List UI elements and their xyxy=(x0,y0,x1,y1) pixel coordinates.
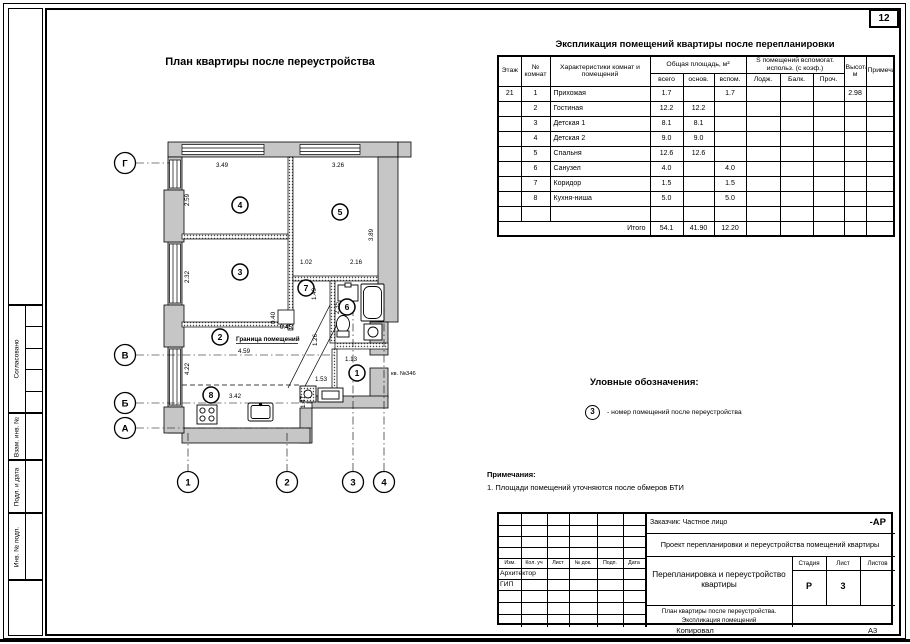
role-gip: ГИП xyxy=(500,581,540,588)
margin-agreed-boxes xyxy=(25,305,43,413)
total-row: Итого 54.1 41.90 12.20 xyxy=(498,221,894,236)
sheet-title-line2: Экспликация помещений xyxy=(649,617,789,624)
svg-text:2: 2 xyxy=(284,478,289,489)
format-label: А3 xyxy=(868,626,877,635)
svg-text:3: 3 xyxy=(238,267,243,277)
explication-total: Итого 54.1 41.90 12.20 xyxy=(498,221,894,236)
windows xyxy=(170,145,361,406)
dimension: 2.16 xyxy=(350,259,363,266)
title-block: Изм. Кол. уч Лист № док. Подп. Дата Архи… xyxy=(497,512,893,625)
dimension: 1.26 xyxy=(312,333,319,346)
explication-title: Экспликация помещений квартиры после пер… xyxy=(497,39,893,50)
dimension: 1.53 xyxy=(315,376,328,383)
dimension: 2.35 xyxy=(334,301,341,314)
legend-title: Уловные обозначения: xyxy=(590,377,760,388)
col-koluch: Кол. уч xyxy=(521,560,547,566)
svg-text:3: 3 xyxy=(350,478,355,489)
project-name: Проект перепланировки и переустройства п… xyxy=(645,540,895,549)
copied-label: Копировал xyxy=(560,626,830,635)
margin-inv-cell: Инв. № подп. xyxy=(8,513,26,580)
col-podp: Подп. xyxy=(597,560,623,566)
table-row: 7Коридор1.51.5 xyxy=(498,176,894,191)
table-row: 6Санузел4.04.0 xyxy=(498,161,894,176)
room-circle-1: 1 xyxy=(349,365,365,381)
dimension: 4.59 xyxy=(238,348,251,355)
room-circle-2: 2 xyxy=(212,329,228,345)
stage-value: Р xyxy=(792,581,826,591)
svg-text:1: 1 xyxy=(355,368,360,378)
svg-text:6: 6 xyxy=(345,302,350,312)
axis-circle-4: 4 xyxy=(374,472,395,493)
notes-line: 1. Площади помещений уточняются после об… xyxy=(487,483,684,492)
axis-circle-g: Г xyxy=(115,153,136,174)
svg-text:8: 8 xyxy=(209,390,214,400)
dimension: 3.89 xyxy=(368,228,375,241)
margin-empty-top xyxy=(8,8,43,305)
svg-text:4: 4 xyxy=(238,200,243,210)
dimension: 1.02 xyxy=(300,259,313,266)
col-ndok: № док. xyxy=(569,560,597,566)
kitchen-fixtures xyxy=(197,403,273,424)
role-architect: Архитектор xyxy=(500,570,564,577)
document-title: Перепланировка и переустройство квартиры xyxy=(649,570,789,591)
drawing-sheet: 12 Согласовано Взам. инв. № Подл. и дата… xyxy=(0,0,910,644)
margin-agreed-label-cell: Согласовано xyxy=(8,305,26,413)
margin-sign-date-cell: Подл. и дата xyxy=(8,460,26,513)
svg-text:7: 7 xyxy=(304,283,309,293)
sign-date-label: Подл. и дата xyxy=(14,467,21,506)
stove-icon xyxy=(197,405,217,424)
axis-circle-1: 1 xyxy=(178,472,199,493)
col-izm: Изм. xyxy=(499,560,521,566)
dimension: 1.49 xyxy=(311,287,318,300)
dimension: 1.47 xyxy=(300,395,307,408)
sheet-label: Лист xyxy=(826,560,860,567)
explication-body: 211Прихожая1.71.72.982Гостиная12.212.23Д… xyxy=(498,86,894,221)
dimension: 4.22 xyxy=(184,362,191,375)
table-row xyxy=(498,206,894,221)
room-number-symbol: 3 xyxy=(585,405,600,420)
sheets-label: Листов xyxy=(860,560,895,567)
table-row: 5Спальня12.612.6 xyxy=(498,146,894,161)
wall-niche xyxy=(278,310,294,324)
page-bottom-edge xyxy=(0,639,910,642)
dimension: 0.40 xyxy=(270,311,277,324)
dimension: 1.13 xyxy=(345,356,358,363)
room-circle-3: 3 xyxy=(232,264,248,280)
col-list: Лист xyxy=(547,560,569,566)
margin-replace-inv-cell: Взам. инв. № xyxy=(8,413,26,460)
axis-circle-a: А xyxy=(115,418,136,439)
table-row: 3Детская 18.18.1 xyxy=(498,116,894,131)
table-row: 211Прихожая1.71.72.98 xyxy=(498,86,894,101)
dimension: 3.49 xyxy=(216,162,229,169)
svg-text:А: А xyxy=(122,424,129,435)
dimension: 2.32 xyxy=(184,270,191,283)
interior-partitions xyxy=(182,157,388,396)
col-data: Дата xyxy=(623,560,645,566)
dimension: 3.26 xyxy=(332,162,345,169)
stage-label: Стадия xyxy=(792,560,826,567)
margin-empty-bottom xyxy=(8,580,43,636)
svg-text:5: 5 xyxy=(338,207,343,217)
floor-plan: Г В Б А 1 2 3 4 1 2 3 4 5 6 7 8 3.49 3.2… xyxy=(100,130,450,500)
svg-text:1: 1 xyxy=(185,478,191,489)
svg-text:4: 4 xyxy=(381,478,387,489)
document-code: -АР xyxy=(870,517,886,528)
customer-label: Заказчик: Частное лицо xyxy=(650,519,727,526)
svg-text:Б: Б xyxy=(122,399,129,410)
svg-text:Г: Г xyxy=(122,159,128,170)
axis-circle-2: 2 xyxy=(277,472,298,493)
room-circle-8: 8 xyxy=(203,387,219,403)
table-row: 8Кухня-ниша5.05.0 xyxy=(498,191,894,206)
axis-circle-3: 3 xyxy=(343,472,364,493)
notes-title: Примечания: xyxy=(487,470,536,479)
room-circle-5: 5 xyxy=(332,204,348,220)
axis-circle-b: Б xyxy=(115,393,136,414)
apartment-number-label: кв. №346 xyxy=(391,371,416,377)
plan-title: План квартиры после переустройства xyxy=(130,56,410,68)
table-row: 4Детская 29.09.0 xyxy=(498,131,894,146)
svg-text:2: 2 xyxy=(218,332,223,342)
dimension: 2.59 xyxy=(184,193,191,206)
sheet-corner-number: 12 xyxy=(869,9,899,28)
sheet-title-line1: План квартиры после переустройства. xyxy=(649,608,789,615)
legend-text: - номер помещений после переустройства xyxy=(607,409,742,416)
explication-header: Этаж № комнат Характеристики комнат и по… xyxy=(498,56,894,86)
svg-text:В: В xyxy=(122,351,129,362)
boundary-label: Граница помещений xyxy=(236,335,300,343)
table-row: 2Гостиная12.212.2 xyxy=(498,101,894,116)
axis-circle-v: В xyxy=(115,345,136,366)
dimension: 0.45 xyxy=(280,324,293,331)
agreed-label: Согласовано xyxy=(14,339,21,378)
explication-table: Этаж № комнат Характеристики комнат и по… xyxy=(497,55,895,237)
inv-label: Инв. № подп. xyxy=(14,526,21,566)
toilet-icon xyxy=(337,316,350,333)
room-circle-6: 6 xyxy=(339,299,355,315)
sheet-value: 3 xyxy=(826,581,860,591)
room-circle-4: 4 xyxy=(232,197,248,213)
dimension: 3.42 xyxy=(229,393,242,400)
replace-inv-label: Взам. инв. № xyxy=(14,416,21,456)
